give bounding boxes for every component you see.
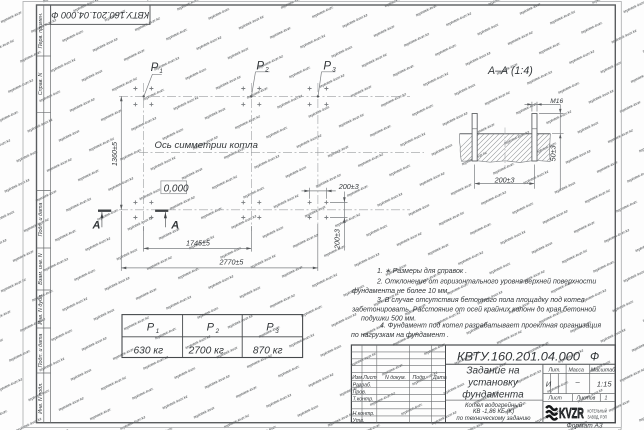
svg-text:фундамента не более 10 мм.: фундамента не более 10 мм. xyxy=(352,287,449,295)
svg-text:Р: Р xyxy=(151,62,159,74)
svg-text:1: 1 xyxy=(156,328,159,335)
svg-text:870 кг: 870 кг xyxy=(253,346,283,357)
svg-text:Лит.: Лит. xyxy=(548,367,561,373)
svg-text:Р: Р xyxy=(147,322,155,334)
svg-text:2: 2 xyxy=(264,66,269,73)
svg-text:Лист: Лист xyxy=(548,396,563,402)
svg-text:Инв. N подл.: Инв. N подл. xyxy=(38,382,44,414)
svg-text:А–А (1:4): А–А (1:4) xyxy=(487,65,533,77)
svg-text:Н.контр.: Н.контр. xyxy=(353,411,375,417)
svg-text:2770±5: 2770±5 xyxy=(219,258,245,267)
svg-text:1: 1 xyxy=(605,396,608,402)
svg-text:1745±5: 1745±5 xyxy=(186,238,211,247)
svg-text:Р: Р xyxy=(266,322,274,334)
svg-text:2: 2 xyxy=(215,328,220,335)
svg-text:фундамента: фундамента xyxy=(462,389,524,401)
svg-text:КВ -1,86 КБ (К): КВ -1,86 КБ (К) xyxy=(473,409,514,415)
svg-text:Масштаб: Масштаб xyxy=(591,367,616,373)
svg-text:Котел водогрейный: Котел водогрейный xyxy=(465,402,523,409)
svg-text:ЗАВОД, РЭП: ЗАВОД, РЭП xyxy=(588,414,608,420)
svg-text:200±3: 200±3 xyxy=(333,229,342,250)
svg-text:3. В случае отсутствия бет: 3. В случае отсутствия бетонного пола пл… xyxy=(377,296,585,304)
svg-text:3: 3 xyxy=(275,328,279,335)
svg-text:N докум.: N докум. xyxy=(385,375,406,381)
svg-text:1360±5: 1360±5 xyxy=(110,141,119,166)
svg-text:Т.контр.: Т.контр. xyxy=(353,397,374,403)
svg-text:–: – xyxy=(575,378,581,387)
svg-text:Р: Р xyxy=(256,60,264,72)
svg-text:Разраб.: Разраб. xyxy=(353,382,372,388)
svg-text:Взам. инв. N: Взам. инв. N xyxy=(38,253,44,285)
svg-text:KVZR: KVZR xyxy=(559,406,584,422)
svg-text:3: 3 xyxy=(332,66,336,73)
svg-text:1. ∗ Размеры для справок .: 1. ∗ Размеры для справок . xyxy=(377,267,467,275)
svg-text:Утв.: Утв. xyxy=(353,418,365,424)
svg-text:Пров.: Пров. xyxy=(353,390,367,396)
svg-text:Ось симметрии котла: Ось симметрии котла xyxy=(155,140,258,151)
svg-text:Дата: Дата xyxy=(432,375,447,381)
svg-text:200±3: 200±3 xyxy=(338,182,359,191)
svg-text:И: И xyxy=(546,380,552,389)
svg-text:50±3: 50±3 xyxy=(548,145,557,161)
svg-text:забетонировать. Расстояние о: забетонировать. Расстояние от осей крайн… xyxy=(351,305,596,313)
svg-text:А: А xyxy=(92,220,101,232)
svg-text:Р: Р xyxy=(323,60,331,72)
svg-text:Ф: Ф xyxy=(590,350,599,363)
svg-text:4. Фундамент под котел раз: 4. Фундамент под котел разрабатывает про… xyxy=(380,322,601,330)
svg-text:Задание на: Задание на xyxy=(466,366,520,377)
svg-text:Подп. и дата: Подп. и дата xyxy=(38,334,44,368)
svg-text:Перв. примен.: Перв. примен. xyxy=(38,13,44,49)
svg-text:А: А xyxy=(170,220,179,232)
svg-text:Инв. N дубл.: Инв. N дубл. xyxy=(38,293,44,324)
svg-text:630 кг: 630 кг xyxy=(134,346,164,357)
svg-text:Справ. N: Справ. N xyxy=(38,73,44,96)
svg-text:подушки 500 мм.: подушки 500 мм. xyxy=(361,315,416,323)
svg-text:КВТУ.160.201.04.000: КВТУ.160.201.04.000 xyxy=(457,350,581,363)
svg-text:М16: М16 xyxy=(550,98,563,105)
svg-text:Масса: Масса xyxy=(569,367,584,373)
svg-text:по техническому заданию: по техническому заданию xyxy=(456,416,531,422)
svg-text:Листов: Листов xyxy=(576,396,596,402)
svg-text:Подп.: Подп. xyxy=(413,375,427,381)
svg-text:200±3: 200±3 xyxy=(494,175,515,184)
svg-text:Р: Р xyxy=(207,322,215,334)
svg-text:КВТУ.160.201.04.000 Ф: КВТУ.160.201.04.000 Ф xyxy=(51,10,149,20)
svg-text:1: 1 xyxy=(159,68,162,75)
svg-text:Формат А3: Формат А3 xyxy=(567,423,603,430)
svg-text:Подп. и дата: Подп. и дата xyxy=(38,203,44,237)
svg-text:0,000: 0,000 xyxy=(164,183,189,194)
svg-text:Изм.Лист: Изм.Лист xyxy=(352,375,377,381)
svg-text:2700 кг: 2700 кг xyxy=(188,346,224,357)
svg-text:по нагрузкам на фундамент .: по нагрузкам на фундамент . xyxy=(351,331,449,339)
svg-text:1:15: 1:15 xyxy=(597,380,613,389)
svg-text:2. Отклонение от горизонтал: 2. Отклонение от горизонтального уровня … xyxy=(376,278,596,286)
svg-text:установку: установку xyxy=(467,378,519,389)
